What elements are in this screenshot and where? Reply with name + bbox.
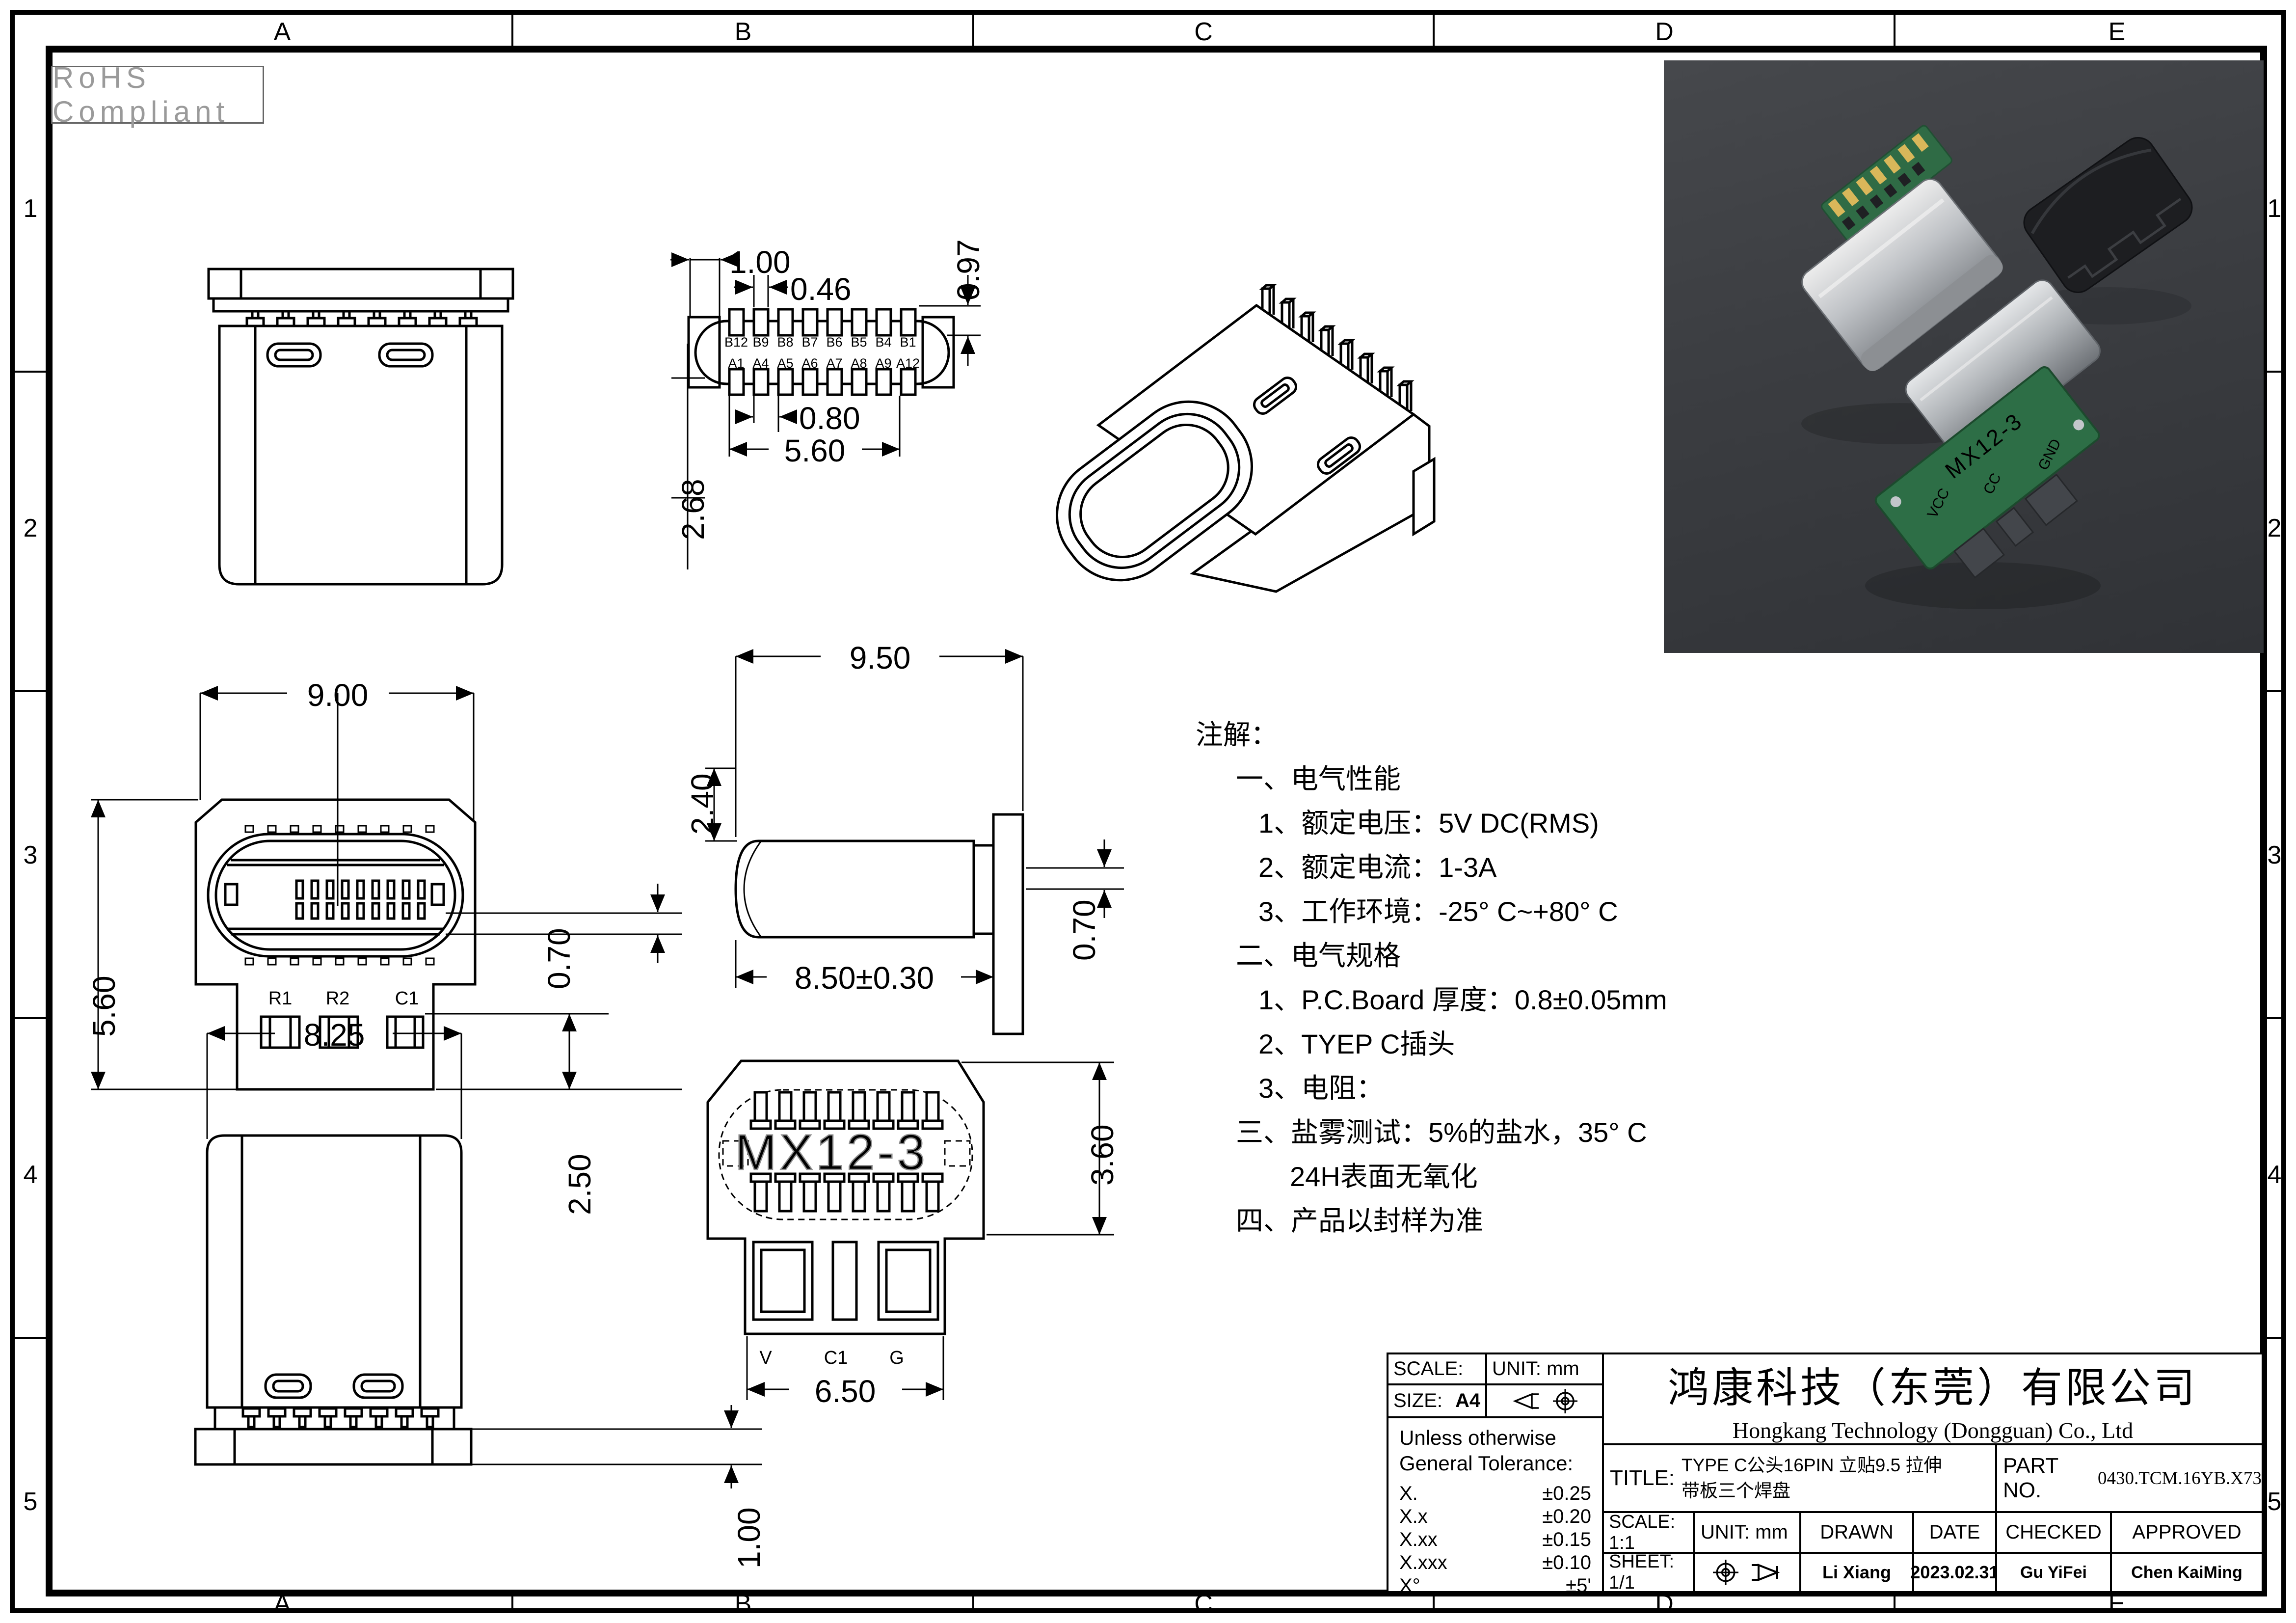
- svg-text:B7: B7: [801, 335, 818, 350]
- title-block: SCALE: UNIT: mm SIZE: A4 Unless otherwis…: [1387, 1352, 2264, 1593]
- projection-symbols-cell-2: [1693, 1552, 1801, 1593]
- zone-top-a: A: [274, 18, 291, 46]
- dim-9-50: 9.50: [850, 640, 911, 676]
- zone-right-1: 1: [2268, 194, 2282, 223]
- dim-9-00: 9.00: [307, 677, 369, 713]
- svg-text:C1: C1: [395, 988, 419, 1009]
- datum-target-icon: [1552, 1388, 1578, 1414]
- product-photo: MX12-3 VCC CC GND: [1664, 60, 2264, 653]
- dim-0-70s: 0.70: [1067, 899, 1102, 961]
- note-line: 一、电气性能: [1196, 757, 1829, 801]
- view-bottom: MX12-3 V C1 G 6.50 3.60: [702, 1051, 1139, 1429]
- date-value-cell: 2023.02.31: [1912, 1552, 1997, 1593]
- drawn-label-cell: DRAWN: [1799, 1511, 1914, 1554]
- svg-text:B5: B5: [851, 335, 867, 350]
- svg-text:A5: A5: [777, 356, 793, 371]
- zone-left-3: 3: [24, 841, 38, 869]
- view-back-elevation: 8.25 1.00: [191, 1011, 780, 1576]
- size-cell: SIZE: A4: [1387, 1383, 1487, 1418]
- svg-text:V: V: [759, 1348, 772, 1368]
- approved-label-cell: APPROVED: [2110, 1511, 2264, 1554]
- scale-top-cell: SCALE:: [1387, 1352, 1487, 1385]
- pin-labels-b: B12 B9 B8 B7 B6 B5 B4 B1: [724, 335, 916, 350]
- drawing-title-line2: 带板三个焊盘: [1682, 1478, 1942, 1504]
- svg-text:A7: A7: [826, 356, 842, 371]
- dim-0-46: 0.46: [790, 271, 852, 307]
- company-name-cn: 鸿康科技（东莞）有限公司: [1668, 1355, 2198, 1414]
- unit-cell: UNIT: mm: [1693, 1511, 1801, 1554]
- svg-text:A1: A1: [728, 356, 744, 371]
- dim-2-40: 2.40: [685, 773, 720, 835]
- zone-right-3: 3: [2268, 841, 2282, 869]
- view-front-elevation: [194, 255, 533, 599]
- projection-symbols-cell: [1485, 1383, 1604, 1418]
- svg-text:R1: R1: [268, 988, 293, 1009]
- zone-right-4: 4: [2268, 1161, 2282, 1189]
- dim-0-80: 0.80: [799, 401, 860, 436]
- datum-target-icon: [1712, 1559, 1739, 1586]
- dim-6-50: 6.50: [815, 1374, 876, 1409]
- note-line: 四、产品以封样为准: [1196, 1199, 1829, 1243]
- drawing-title-line1: TYPE C公头16PIN 立贴9.5 拉伸: [1682, 1453, 1942, 1478]
- svg-text:A9: A9: [875, 356, 891, 371]
- approved-by-cell: Chen KaiMing: [2110, 1552, 2264, 1593]
- note-line: 1、额定电压：5V DC(RMS): [1196, 801, 1829, 845]
- company-cell: 鸿康科技（东莞）有限公司 Hongkang Technology (Donggu…: [1602, 1352, 2264, 1445]
- svg-text:A8: A8: [851, 356, 867, 371]
- projection-cone-icon: [1748, 1560, 1782, 1585]
- zone-left-2: 2: [24, 514, 38, 542]
- svg-text:A4: A4: [752, 356, 769, 371]
- view-side: 9.50 2.40 8.50±0.30 0.70: [697, 633, 1139, 1046]
- zone-right-5: 5: [2268, 1488, 2282, 1516]
- component-labels: R1 R2 C1: [268, 988, 419, 1009]
- date-label-cell: DATE: [1912, 1511, 1997, 1554]
- bottom-pad-labels: V C1 G: [759, 1348, 904, 1368]
- svg-text:R2: R2: [326, 988, 350, 1009]
- part-no-value: 0430.TCM.16YB.X73: [2098, 1468, 2262, 1489]
- zone-top-b: B: [735, 18, 752, 46]
- unit-top-cell: UNIT: mm: [1485, 1352, 1604, 1385]
- tolerance-cell: Unless otherwise General Tolerance: X.±0…: [1387, 1416, 1604, 1593]
- svg-text:C1: C1: [824, 1348, 848, 1368]
- company-name-en: Hongkang Technology (Dongguan) Co., Ltd: [1733, 1417, 2133, 1443]
- zone-left-5: 5: [24, 1488, 38, 1516]
- rohs-stamp: RoHS Compliant: [51, 66, 264, 124]
- zone-left-4: 4: [24, 1161, 38, 1189]
- svg-text:G: G: [889, 1348, 904, 1368]
- svg-text:A12: A12: [896, 356, 920, 371]
- engineering-drawing-page: { "page": { "rohs": "RoHS Compliant" }, …: [0, 0, 2296, 1623]
- rohs-text: RoHS Compliant: [53, 61, 263, 129]
- svg-text:B1: B1: [900, 335, 916, 350]
- note-line: 3、工作环境：-25° C~+80° C: [1196, 890, 1829, 934]
- zone-bottom-e: E: [2109, 1590, 2126, 1618]
- note-line: 3、电阻：: [1196, 1066, 1829, 1110]
- svg-text:B6: B6: [826, 335, 842, 350]
- dim-1-00: 1.00: [729, 244, 791, 280]
- zone-bottom-b: B: [735, 1590, 752, 1618]
- dim-2-68: 2.68: [675, 479, 711, 540]
- notes: 注解： 一、电气性能 1、额定电压：5V DC(RMS) 2、额定电流：1-3A…: [1196, 713, 1829, 1243]
- dim-1-00: 1.00: [731, 1507, 767, 1569]
- svg-text:B12: B12: [724, 335, 748, 350]
- dim-0-70: 0.70: [541, 928, 577, 989]
- drawn-by-cell: Li Xiang: [1799, 1552, 1914, 1593]
- ghost-marking: MX12-3: [735, 1124, 928, 1180]
- note-line: 注解：: [1196, 713, 1829, 757]
- dim-3-60: 3.60: [1085, 1124, 1120, 1186]
- scale-cell: SCALE: 1:1: [1602, 1511, 1695, 1554]
- note-line: 二、电气规格: [1196, 934, 1829, 978]
- pads-bottom-row: [729, 369, 915, 395]
- svg-text:B4: B4: [875, 335, 891, 350]
- zone-left-1: 1: [24, 194, 38, 223]
- dim-8-50: 8.50±0.30: [795, 960, 934, 996]
- dim-5-60: 5.60: [784, 433, 846, 468]
- view-pad-layout: B12 B9 B8 B7 B6 B5 B4 B1 A1 A4 A5 A6 A7 …: [663, 231, 1006, 584]
- zone-top-c: C: [1194, 18, 1213, 46]
- note-line: 1、P.C.Board 厚度：0.8±0.05mm: [1196, 978, 1829, 1022]
- note-line: 24H表面无氧化: [1196, 1155, 1829, 1199]
- dim-8-25: 8.25: [304, 1017, 365, 1053]
- zone-top-e: E: [2109, 18, 2126, 46]
- sheet-cell: SHEET: 1/1: [1602, 1552, 1695, 1593]
- note-line: 三、盐雾测试：5%的盐水，35° C: [1196, 1110, 1829, 1155]
- svg-text:B9: B9: [752, 335, 769, 350]
- projection-cone-icon: [1511, 1390, 1543, 1412]
- iso-flange: [1414, 459, 1434, 534]
- pin-labels-a: A1 A4 A5 A6 A7 A8 A9 A12: [728, 356, 920, 371]
- note-line: 2、TYEP C插头: [1196, 1022, 1829, 1066]
- title-cell: TITLE: TYPE C公头16PIN 立贴9.5 拉伸 带板三个焊盘: [1602, 1443, 1997, 1513]
- dim-5-60v: 5.60: [86, 975, 122, 1037]
- zone-bottom-c: C: [1194, 1590, 1213, 1618]
- part-no-cell: PART NO. 0430.TCM.16YB.X73: [1995, 1443, 2264, 1513]
- zone-top-d: D: [1655, 18, 1674, 46]
- checked-by-cell: Gu YiFei: [1995, 1552, 2112, 1593]
- photo-housing-black: [2018, 131, 2199, 299]
- front-pins: [247, 311, 477, 326]
- dim-0-97: 0.97: [951, 239, 986, 300]
- zone-bottom-a: A: [274, 1590, 291, 1618]
- zone-right-2: 2: [2268, 514, 2282, 542]
- zone-bottom-d: D: [1655, 1590, 1674, 1618]
- svg-text:A6: A6: [801, 356, 818, 371]
- view-isometric: [1045, 265, 1517, 589]
- note-line: 2、额定电流：1-3A: [1196, 845, 1829, 890]
- svg-text:B8: B8: [777, 335, 793, 350]
- checked-label-cell: CHECKED: [1995, 1511, 2112, 1554]
